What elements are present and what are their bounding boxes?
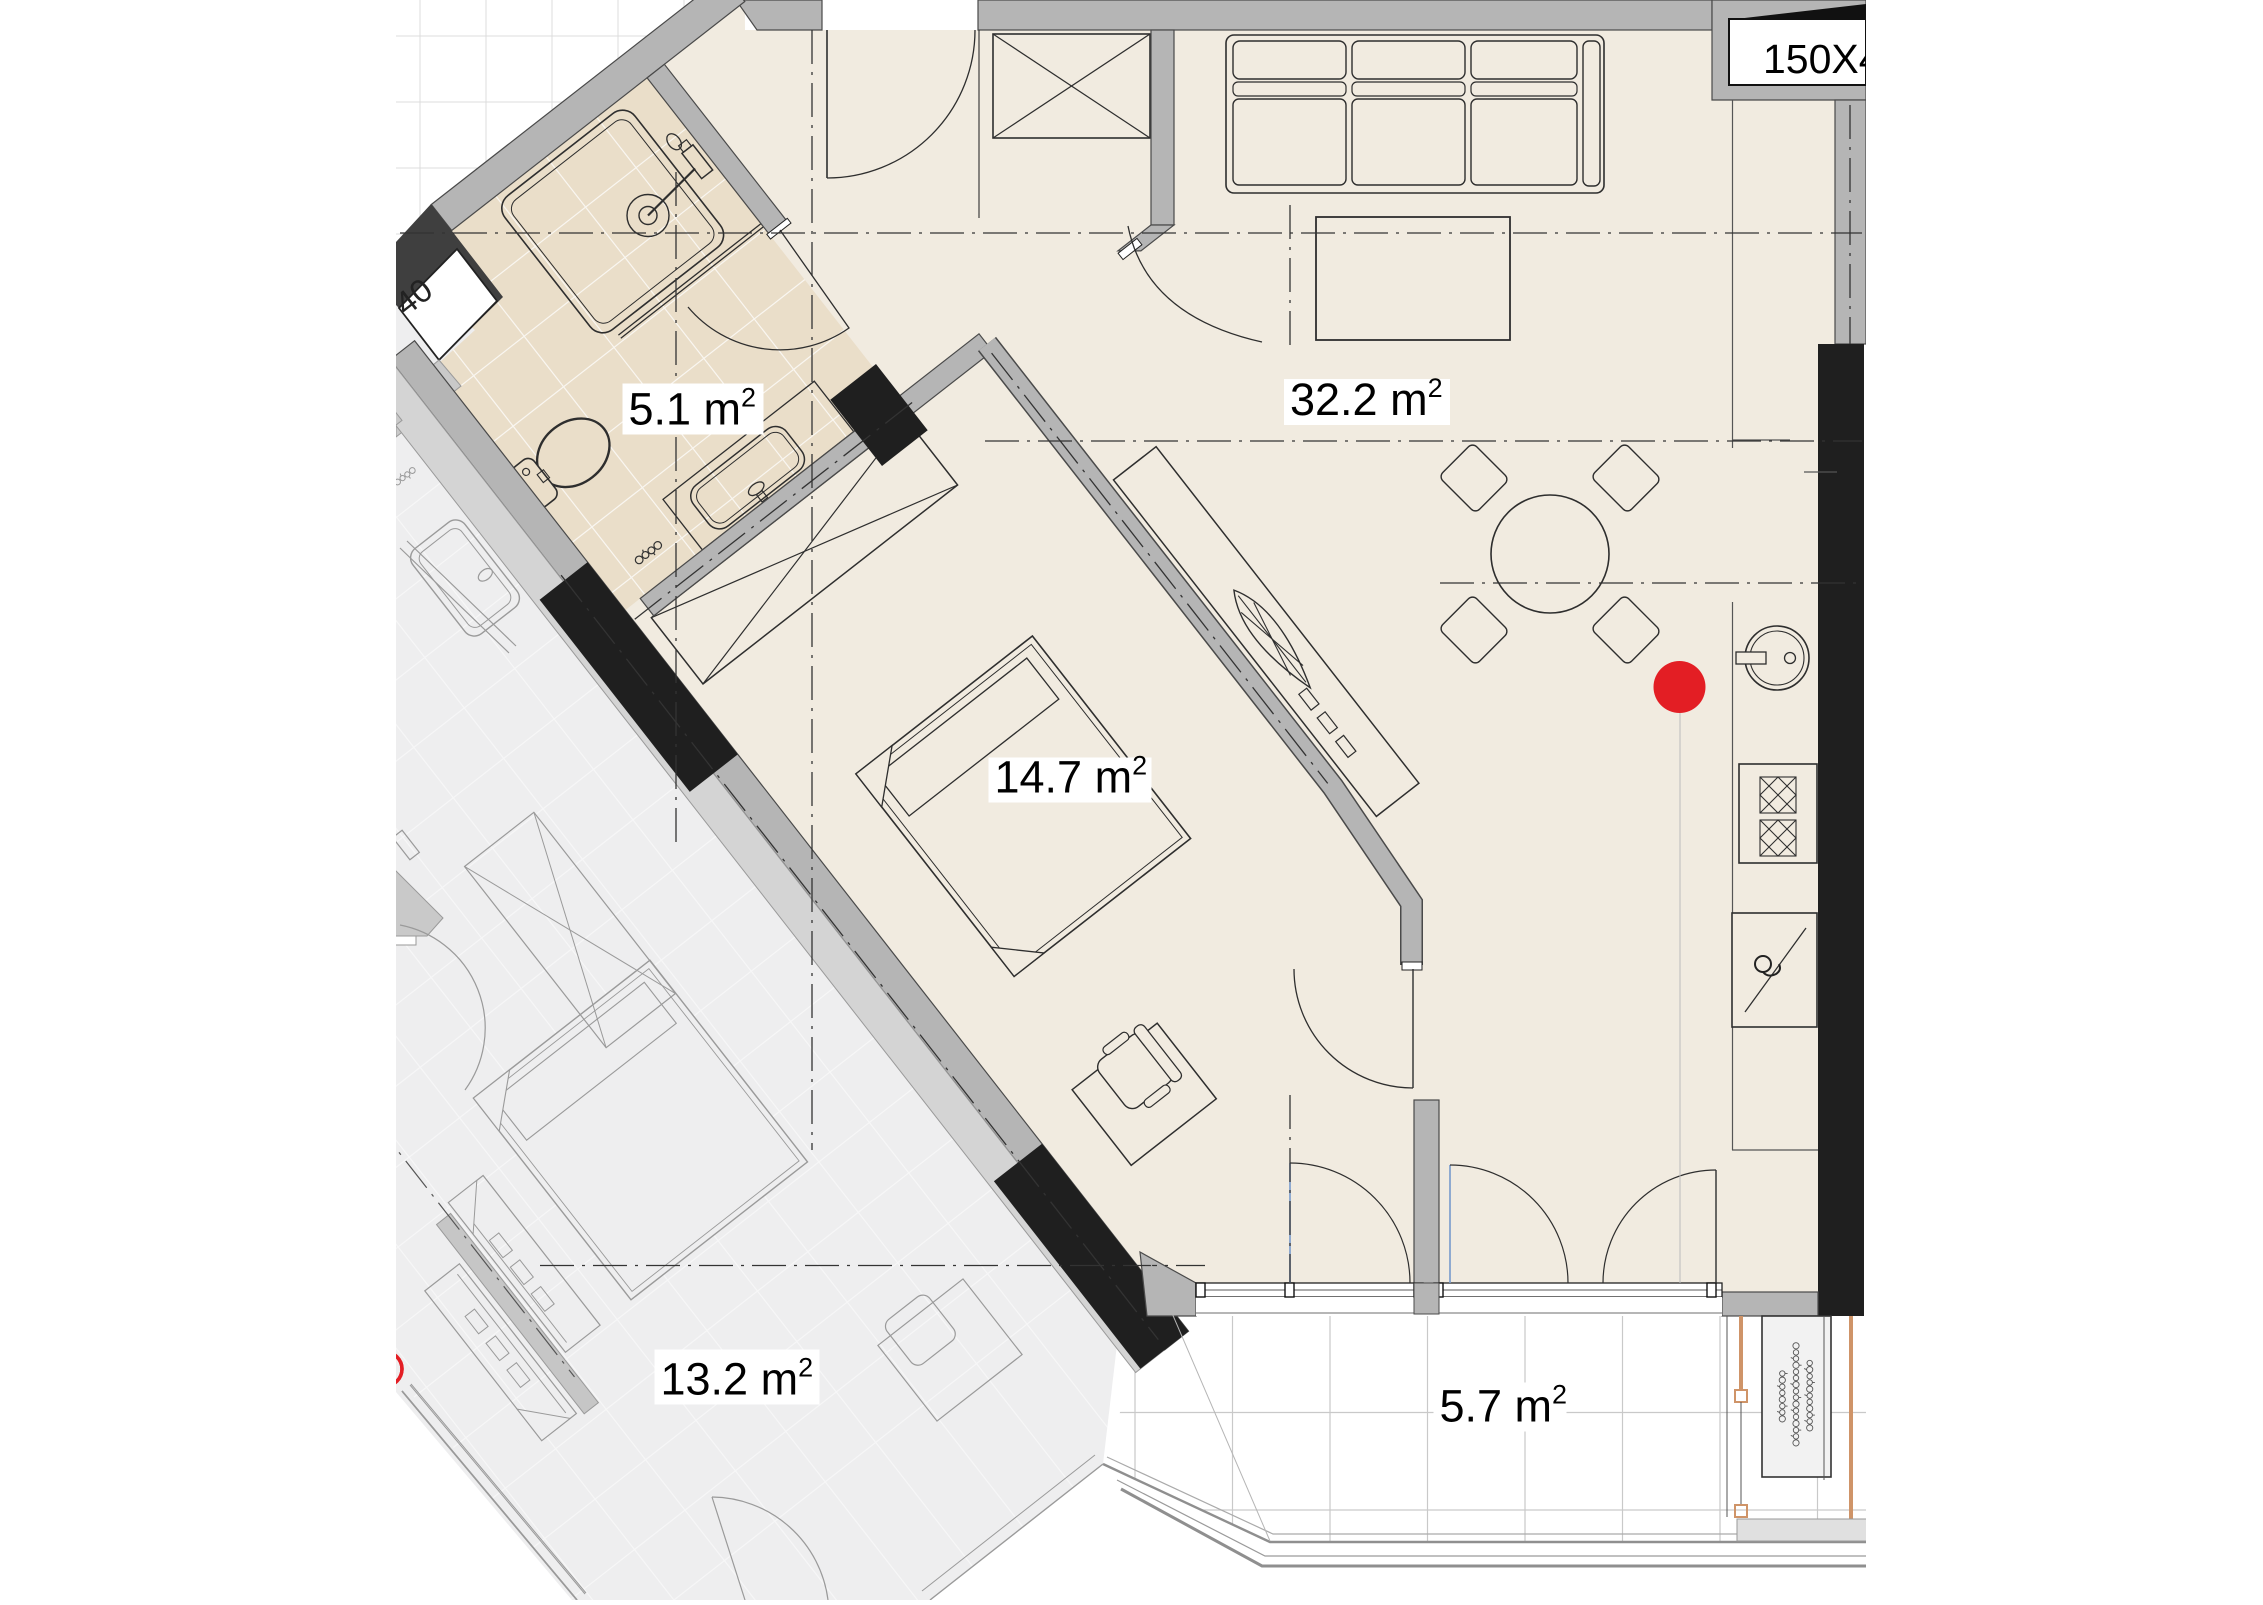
svg-text:14.7 m2: 14.7 m2 (995, 751, 1148, 803)
svg-text:5.1 m2: 5.1 m2 (629, 383, 757, 435)
svg-text:32.2 m2: 32.2 m2 (1290, 373, 1443, 425)
svg-text:13.2 m2: 13.2 m2 (661, 1353, 814, 1405)
svg-text:5.7 m2: 5.7 m2 (1440, 1380, 1568, 1432)
